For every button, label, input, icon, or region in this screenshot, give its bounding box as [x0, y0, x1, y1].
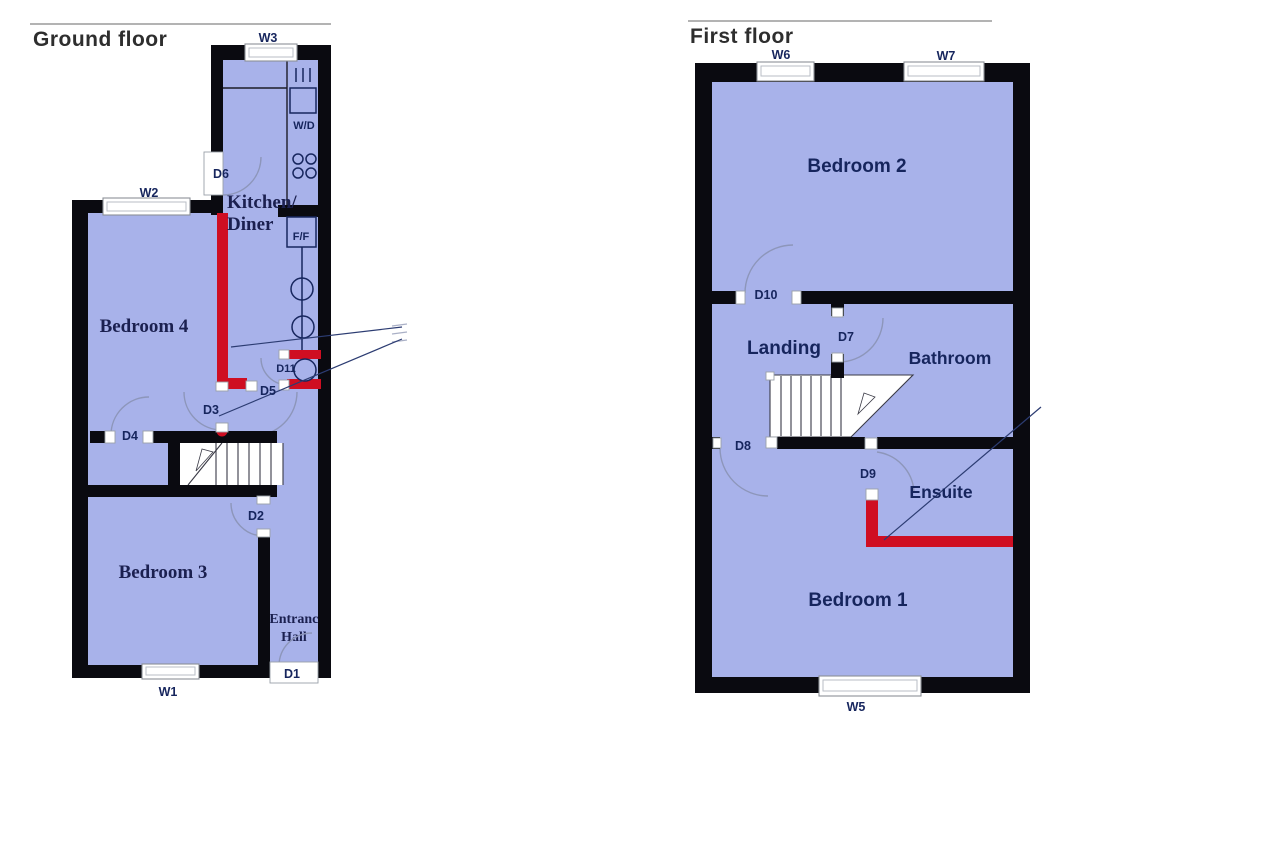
- window-label-w3: W3: [259, 31, 278, 45]
- appliance-label-wd: W/D: [293, 120, 314, 132]
- window-w6: [757, 62, 814, 81]
- floorplan-page: Entrance Hall: [0, 0, 1280, 850]
- ground-stairs: [180, 443, 283, 485]
- room-label-landing: Landing: [747, 338, 821, 359]
- window-w3: [245, 44, 297, 61]
- window-label-w5: W5: [847, 700, 866, 714]
- door-label-d6: D6: [213, 167, 229, 181]
- door-label-d8: D8: [735, 439, 751, 453]
- new-stud-wall: [217, 213, 228, 381]
- ground-floor-plan: Entrance Hall: [30, 24, 407, 699]
- first-floor-plan: First floor Bedroom 2 Landing Bathroom E…: [688, 21, 1041, 714]
- door-label-d5: D5: [260, 384, 276, 398]
- toilet-icon: [294, 359, 316, 381]
- appliance-label-ff: F/F: [293, 231, 310, 243]
- ensuite-new-wall-horizontal: [866, 536, 1013, 547]
- ground-floor-title: Ground floor: [33, 28, 167, 51]
- window-w2: [103, 198, 190, 215]
- door-label-d10: D10: [755, 288, 778, 302]
- window-label-w7: W7: [937, 49, 956, 63]
- door-label-d9: D9: [860, 467, 876, 481]
- room-label-kitchen-1: Kitchen/: [227, 192, 297, 213]
- door-label-d1: D1: [284, 667, 300, 681]
- window-w1: [142, 664, 199, 679]
- room-label-bedroom4: Bedroom 4: [100, 316, 189, 337]
- door-label-d11: D11: [276, 363, 296, 375]
- room-label-bathroom: Bathroom: [909, 348, 992, 368]
- window-label-w6: W6: [772, 48, 791, 62]
- window-w5: [819, 676, 921, 696]
- ground-floor-area: [72, 45, 331, 678]
- door-label-d7: D7: [838, 330, 854, 344]
- window-label-w2: W2: [140, 186, 159, 200]
- first-floor-title: First floor: [690, 25, 794, 48]
- window-w7: [904, 62, 984, 81]
- door-label-d3: D3: [203, 403, 219, 417]
- door-label-d4: D4: [122, 429, 138, 443]
- room-label-bedroom3: Bedroom 3: [119, 562, 208, 583]
- room-label-entrance-hall-1: Entrance: [269, 612, 324, 627]
- door-label-d2: D2: [248, 509, 264, 523]
- room-label-kitchen-2: Diner: [227, 214, 274, 235]
- room-label-ensuite: Ensuite: [909, 482, 972, 502]
- room-label-bedroom2: Bedroom 2: [807, 156, 906, 177]
- window-label-w1: W1: [159, 685, 178, 699]
- floorplan-canvas: Entrance Hall: [0, 0, 1280, 850]
- room-label-bedroom1: Bedroom 1: [808, 590, 908, 611]
